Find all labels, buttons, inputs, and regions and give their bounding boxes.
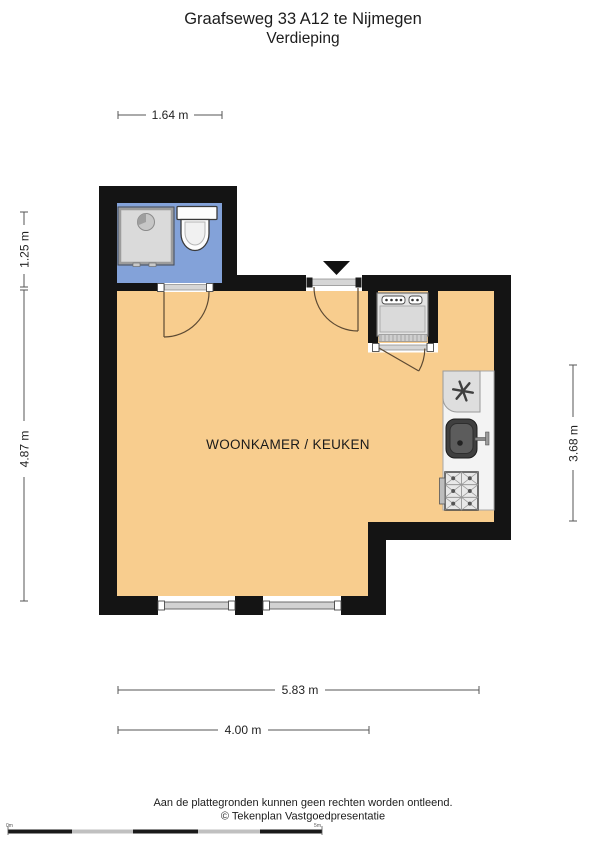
floorplan-canvas: Graafseweg 33 A12 te Nijmegen Verdieping	[0, 0, 600, 849]
window-right-post-b	[335, 601, 342, 610]
dimension-label: 4.87 m	[18, 431, 32, 468]
sink-faucet-base	[486, 432, 490, 445]
window-left-glazing	[164, 602, 229, 609]
dimension-label: 1.25 m	[18, 231, 32, 268]
closet-frame-post-left	[373, 344, 380, 352]
floorplan-page: Graafseweg 33 A12 te Nijmegen Verdieping	[0, 0, 600, 849]
dimension-right: 3.68 m	[567, 365, 581, 521]
dimension-left-lower: 4.87 m	[18, 290, 32, 601]
window-left-post-a	[158, 601, 165, 610]
scale-end-label: 5m	[314, 823, 321, 829]
bathroom-frame-post-right	[207, 284, 214, 292]
sink-drain	[457, 440, 463, 446]
window-right-post-a	[263, 601, 270, 610]
toilet-tank	[177, 207, 217, 220]
kitchen-counter	[440, 371, 495, 510]
washing-machine-icon	[377, 293, 428, 342]
scale-segment	[133, 830, 198, 834]
stove-handle	[440, 478, 446, 504]
window-right	[263, 596, 341, 615]
stove-icon	[440, 472, 479, 510]
scale-segment	[260, 830, 322, 834]
dimension-label: 3.68 m	[567, 425, 581, 462]
bathroom-door-threshold	[165, 285, 207, 291]
window-right-glazing	[270, 602, 335, 609]
dimension-bottom-partial: 4.00 m	[118, 723, 369, 737]
entrance-frame-post-right	[356, 278, 362, 288]
disclaimer-text: Aan de plattegronden kunnen geen rechten…	[153, 797, 452, 809]
page-subtitle: Verdieping	[266, 30, 339, 47]
dimension-left-upper: 1.25 m	[18, 212, 32, 287]
washing-machine-vent	[379, 335, 427, 342]
window-left	[158, 596, 235, 615]
entrance-arrow-icon	[323, 261, 350, 275]
shower-foot-a	[133, 263, 140, 267]
entrance-frame-post-left	[307, 278, 313, 288]
scale-segment	[198, 830, 260, 834]
dimension-bottom-total: 5.83 m	[118, 683, 479, 697]
scale-bar: 0m 5m	[6, 823, 322, 835]
credit-text: © Tekenplan Vastgoedpresentatie	[221, 811, 385, 823]
entrance-door-leaf-closed	[312, 279, 356, 286]
scale-segment	[8, 830, 72, 834]
shower-icon	[118, 207, 174, 267]
dimension-top-width: 1.64 m	[118, 108, 222, 122]
page-title: Graafseweg 33 A12 te Nijmegen	[184, 10, 422, 28]
dimension-label: 4.00 m	[225, 723, 262, 737]
sink-basin	[450, 424, 473, 454]
closet-door-threshold	[378, 345, 428, 350]
washing-machine-top	[380, 306, 425, 332]
shower-foot-b	[149, 263, 156, 267]
toilet-seat	[185, 222, 205, 245]
closet-frame-post-right	[427, 344, 434, 352]
dimension-label: 5.83 m	[282, 683, 319, 697]
room-label: WOONKAMER / KEUKEN	[206, 437, 370, 452]
bathroom-frame-post-left	[158, 284, 165, 292]
scale-start-label: 0m	[6, 823, 13, 829]
washing-machine-knob-panel-b	[409, 296, 422, 304]
dimension-label: 1.64 m	[152, 108, 189, 122]
window-left-post-b	[229, 601, 236, 610]
scale-segment	[72, 830, 133, 834]
